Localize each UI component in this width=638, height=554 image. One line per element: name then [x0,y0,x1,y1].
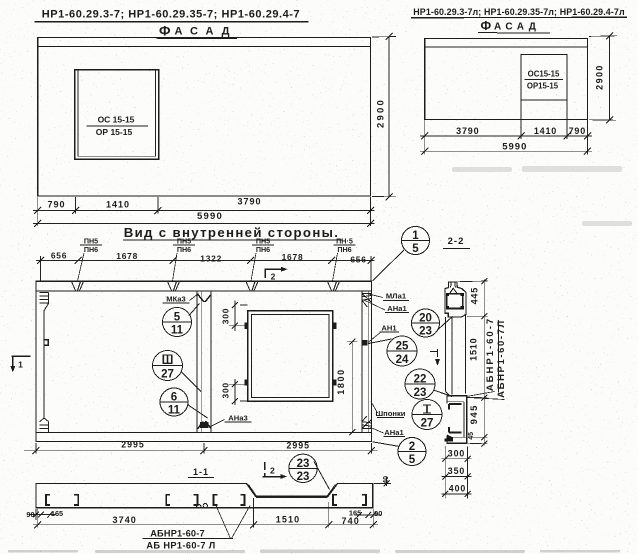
svg-text:1410: 1410 [106,200,130,210]
svg-text:11: 11 [171,325,184,337]
svg-text:22: 22 [414,374,427,386]
svg-text:24: 24 [396,354,409,366]
svg-text:1800: 1800 [336,368,346,394]
svg-text:3790: 3790 [237,197,261,207]
svg-text:НР1-60.29.3-7л; НР1-60.29.35-7: НР1-60.29.3-7л; НР1-60.29.35-7л; НР1-60.… [413,7,625,17]
svg-text:ПН6: ПН6 [337,245,351,254]
svg-text:АН1: АН1 [381,323,397,332]
svg-text:5990: 5990 [502,141,527,152]
svg-text:Ш: Ш [162,355,174,367]
svg-text:300: 300 [221,382,231,398]
svg-text:ОР 15-15: ОР 15-15 [96,127,133,137]
svg-text:23: 23 [414,387,427,399]
svg-text:Вид с внутренней стороны.: Вид с внутренней стороны. [124,225,340,240]
svg-text:23: 23 [297,458,310,470]
svg-text:23: 23 [419,326,432,338]
svg-text:1: 1 [412,230,419,242]
svg-text:ОР15-15: ОР15-15 [527,82,559,91]
svg-text:МКа3: МКа3 [166,294,186,303]
svg-text:945: 945 [469,404,480,424]
svg-text:300: 300 [448,448,465,458]
svg-text:2: 2 [409,441,415,453]
svg-text:2900: 2900 [376,98,387,128]
svg-text:6: 6 [171,392,177,404]
svg-text:11: 11 [168,405,181,417]
svg-text:НР1-60.29.3-7; НР1-60.29.35-7;: НР1-60.29.3-7; НР1-60.29.35-7; НР1-60.29… [42,8,300,20]
svg-text:40: 40 [383,476,390,484]
svg-text:ПН6: ПН6 [84,245,98,254]
svg-text:ОС15-15: ОС15-15 [528,69,560,78]
svg-text:790: 790 [47,200,65,210]
svg-text:I: I [425,404,428,416]
svg-text:АСАД: АСАД [494,21,540,32]
svg-text:АНа3: АНа3 [228,413,247,422]
svg-text:25: 25 [396,341,409,353]
svg-text:27: 27 [421,418,434,430]
svg-text:300: 300 [221,308,231,324]
svg-text:20: 20 [419,313,432,325]
svg-text:1-1: 1-1 [193,467,209,477]
svg-text:1678: 1678 [116,251,138,261]
svg-text:АБНР1-60-7Л: АБНР1-60-7Л [496,319,507,398]
svg-text:5: 5 [412,243,419,255]
svg-text:5990: 5990 [197,211,223,222]
svg-text:3790: 3790 [456,126,479,136]
svg-text:Ф: Ф [481,19,492,33]
svg-text:656: 656 [350,255,366,265]
svg-text:АСАД: АСАД [175,26,238,38]
svg-text:ПН6: ПН6 [256,245,270,254]
svg-text:1: 1 [18,360,23,370]
svg-text:90: 90 [26,510,34,519]
svg-text:2: 2 [271,272,276,282]
svg-text:ОС 15-15: ОС 15-15 [98,115,135,125]
svg-text:1410: 1410 [534,126,557,136]
svg-text:5: 5 [174,312,181,324]
svg-text:740: 740 [342,516,360,526]
svg-text:90: 90 [374,509,382,518]
svg-text:2900: 2900 [595,64,605,90]
svg-text:ПН6: ПН6 [177,245,191,254]
svg-text:Ф: Ф [159,24,171,39]
svg-text:5: 5 [409,454,416,466]
svg-text:1322: 1322 [200,254,222,264]
svg-text:3740: 3740 [112,515,136,525]
svg-text:АБНР1-60-7: АБНР1-60-7 [485,317,496,391]
svg-text:Шпонки: Шпонки [376,409,406,418]
svg-text:АНа1: АНа1 [387,304,407,313]
svg-text:23: 23 [297,471,310,483]
svg-text:445: 445 [470,287,480,304]
svg-text:1510: 1510 [469,338,479,361]
svg-text:165: 165 [51,509,63,518]
svg-text:350: 350 [448,466,465,476]
svg-text:2-2: 2-2 [448,236,465,247]
svg-text:45: 45 [468,432,475,440]
svg-text:АНа1: АНа1 [384,428,404,437]
svg-text:2995: 2995 [121,439,145,449]
svg-text:АБ НР1-60-7 Л: АБ НР1-60-7 Л [146,540,215,550]
svg-text:400: 400 [449,483,466,493]
svg-text:2: 2 [270,466,275,476]
svg-text:АБНР1-60-7: АБНР1-60-7 [150,528,205,538]
svg-text:МЛа1: МЛа1 [386,292,407,301]
svg-text:2995: 2995 [287,440,311,450]
svg-text:1678: 1678 [282,252,304,262]
svg-text:656: 656 [51,251,67,261]
svg-text:27: 27 [161,369,174,381]
svg-text:1510: 1510 [276,515,300,525]
svg-text:790: 790 [569,126,586,136]
